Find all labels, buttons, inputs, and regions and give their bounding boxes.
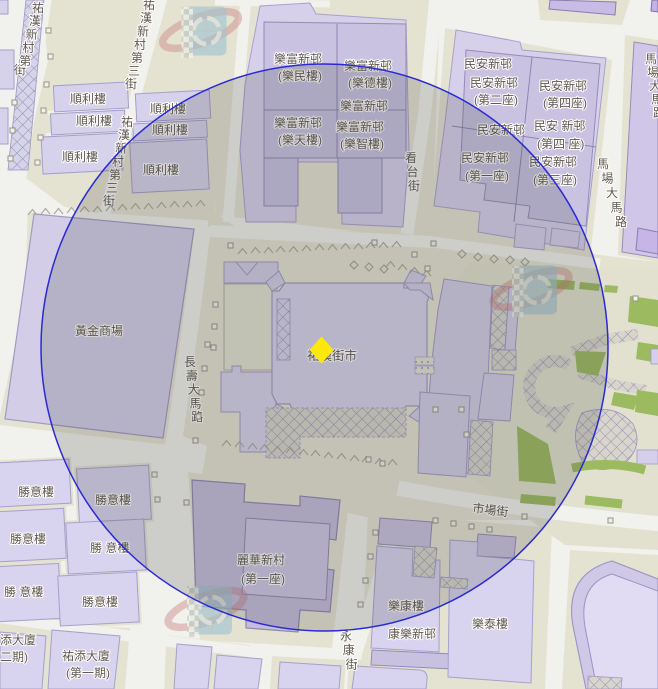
svg-text:民安新邨: 民安新邨 — [464, 56, 512, 71]
svg-text:勝意樓: 勝意樓 — [18, 484, 54, 499]
svg-text:順利樓: 順利樓 — [76, 113, 112, 128]
svg-text:(第四 座): (第四 座) — [537, 136, 584, 151]
svg-text:康樂新邨: 康樂新邨 — [388, 626, 436, 641]
svg-text:二期): 二期) — [0, 650, 28, 664]
svg-text:順利樓: 順利樓 — [62, 149, 98, 164]
svg-text:勝 意樓: 勝 意樓 — [4, 584, 43, 599]
svg-text:勝意樓: 勝意樓 — [82, 594, 118, 609]
svg-text:(第一期): (第一期) — [66, 666, 110, 680]
svg-text:民安 新邨: 民安 新邨 — [534, 118, 585, 133]
svg-text:順利樓: 順利樓 — [70, 91, 106, 106]
svg-text:祐添大廈: 祐添大廈 — [62, 648, 110, 663]
svg-text:民安新邨: 民安新邨 — [539, 78, 587, 93]
svg-text:勝意樓: 勝意樓 — [10, 531, 46, 546]
svg-text:添大廈: 添大廈 — [0, 632, 36, 647]
svg-text:樂泰樓: 樂泰樓 — [472, 616, 508, 631]
svg-text:民安新邨: 民安新邨 — [470, 75, 518, 90]
svg-text:(第二座): (第二座) — [474, 92, 518, 107]
svg-text:(第四座): (第四座) — [543, 95, 587, 110]
